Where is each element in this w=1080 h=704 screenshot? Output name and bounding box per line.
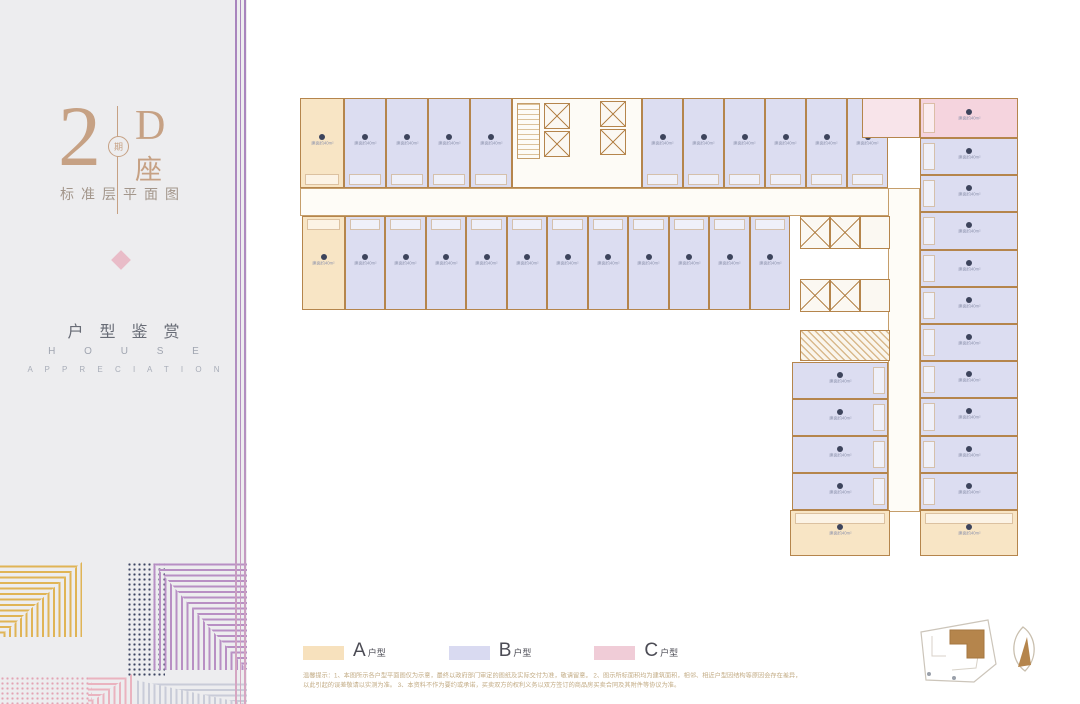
unit-type-B: 建面约40m² [792, 399, 888, 436]
compass-north-icon [1002, 622, 1044, 683]
elevator-icon [800, 216, 830, 249]
unit-type-B: 建面约40m² [507, 216, 547, 310]
unit-area-label: 建面约40m² [829, 416, 851, 421]
legend-letter-c: C [644, 641, 658, 660]
unit-icon [783, 134, 789, 140]
unit-area-label: 建面约40m² [692, 141, 714, 146]
unit-type-B: 建面约40m² [920, 398, 1018, 436]
unit-type-B: 建面约40m² [920, 324, 1018, 361]
unit-bathroom [688, 174, 719, 185]
legend-suffix-b: 户型 [513, 646, 531, 659]
unit-type-A: 建面约40m² [790, 510, 890, 556]
unit-icon [362, 134, 368, 140]
unit-type-B: 建面约40m² [920, 361, 1018, 398]
unit-bathroom [431, 219, 461, 230]
unit-icon [403, 254, 409, 260]
unit-area-label: 建面约40m² [311, 141, 333, 146]
unit-type-C [862, 98, 920, 138]
unit-bathroom [923, 255, 935, 282]
unit-bathroom [923, 143, 935, 170]
unit-icon [966, 297, 972, 303]
unit-type-B: 建面约40m² [642, 98, 683, 188]
unit-icon [966, 109, 972, 115]
unit-icon [966, 483, 972, 489]
unit-area-label: 建面约40m² [637, 261, 659, 266]
elevator-icon [544, 103, 570, 129]
unit-bathroom [349, 174, 381, 185]
elevator-icon [544, 131, 570, 157]
unit-area-label: 建面约40m² [815, 141, 837, 146]
unit-type-B: 建面约40m² [792, 436, 888, 473]
unit-area-label: 建面约40m² [759, 261, 781, 266]
unit-bathroom [923, 329, 935, 356]
unit-area-label: 建面约40m² [480, 141, 502, 146]
unit-bathroom [647, 174, 678, 185]
unit-type-A: 建面约40m² [920, 510, 1018, 556]
unit-bathroom [923, 366, 935, 393]
unit-type-B: 建面约40m² [426, 216, 466, 310]
unit-area-label: 建面约40m² [354, 141, 376, 146]
unit-icon [701, 134, 707, 140]
elevator-icon [830, 279, 860, 312]
unit-area-label: 建面约40m² [958, 229, 980, 234]
unit-area-label: 建面约40m² [774, 141, 796, 146]
unit-type-B: 建面约40m² [920, 212, 1018, 250]
unit-bathroom [350, 219, 380, 230]
unit-type-B: 建面约40m² [920, 473, 1018, 510]
legend-suffix-a: 户型 [368, 646, 386, 659]
unit-area-label: 建面约40m² [516, 261, 538, 266]
legend-letter-b: B [499, 641, 512, 660]
unit-type-B: 建面约40m² [588, 216, 628, 310]
unit-type-B: 建面约40m² [470, 98, 512, 188]
unit-icon [321, 254, 327, 260]
unit-type-B: 建面约40m² [344, 98, 386, 188]
unit-type-B: 建面约40m² [920, 436, 1018, 473]
unit-icon [966, 222, 972, 228]
unit-icon [605, 254, 611, 260]
unit-icon [742, 134, 748, 140]
unit-bathroom [925, 513, 1013, 524]
unit-type-B: 建面约40m² [920, 175, 1018, 212]
unit-bathroom [593, 219, 623, 230]
legend-item-a: A 户型 [303, 641, 386, 660]
unit-type-B: 建面约40m² [628, 216, 669, 310]
unit-area-label: 建面约40m² [958, 304, 980, 309]
unit-area-label: 建面约40m² [475, 261, 497, 266]
unit-type-B: 建面约40m² [428, 98, 470, 188]
unit-icon [443, 254, 449, 260]
unit-icon [966, 371, 972, 377]
unit-type-B: 建面约40m² [806, 98, 847, 188]
unit-bathroom [923, 478, 935, 505]
lobby-cell [860, 279, 890, 312]
unit-area-label: 建面约40m² [312, 261, 334, 266]
unit-bathroom [633, 219, 664, 230]
unit-bathroom [873, 478, 885, 505]
unit-icon [404, 134, 410, 140]
unit-icon [966, 446, 972, 452]
unit-icon [966, 148, 972, 154]
unit-type-B: 建面约40m² [792, 473, 888, 510]
unit-icon [646, 254, 652, 260]
unit-area-label: 建面约40m² [958, 490, 980, 495]
disclaimer-line-2: 以此引起的误差敬请以实测为准。 3、本资料不作为要约或承诺，买卖双方的权利义务以… [303, 681, 911, 690]
unit-icon [837, 372, 843, 378]
unit-area-label: 建面约40m² [718, 261, 740, 266]
unit-area-label: 建面约40m² [958, 415, 980, 420]
unit-area-label: 建面约40m² [829, 531, 851, 536]
unit-area-label: 建面约40m² [829, 490, 851, 495]
legend-swatch-a [303, 646, 344, 660]
unit-type-B: 建面约40m² [920, 138, 1018, 175]
unit-icon [837, 446, 843, 452]
unit-area-label: 建面约40m² [438, 141, 460, 146]
unit-icon [362, 254, 368, 260]
legend-swatch-c [594, 646, 635, 660]
unit-type-B: 建面约40m² [920, 287, 1018, 324]
unit-bathroom [923, 403, 935, 431]
corridor [888, 188, 920, 512]
unit-area-label: 建面约40m² [958, 378, 980, 383]
unit-type-B: 建面约40m² [792, 362, 888, 399]
unit-area-label: 建面约40m² [394, 261, 416, 266]
unit-area-label: 建面约40m² [958, 531, 980, 536]
unit-area-label: 建面约40m² [597, 261, 619, 266]
unit-area-label: 建面约40m² [733, 141, 755, 146]
unit-icon [966, 334, 972, 340]
legend-letter-a: A [353, 641, 366, 660]
unit-icon [488, 134, 494, 140]
unit-bathroom [471, 219, 502, 230]
unit-area-label: 建面约40m² [396, 141, 418, 146]
unit-bathroom [795, 513, 885, 524]
unit-icon [727, 254, 733, 260]
unit-bathroom [923, 180, 935, 207]
unit-bathroom [714, 219, 745, 230]
unit-bathroom [873, 441, 885, 468]
legend-item-c: C 户型 [594, 641, 678, 660]
unit-bathroom [674, 219, 704, 230]
disclaimer-line-1: 温馨提示：1、本图所示各户型平面图仅为示意，最终以政府部门审定的图纸及实际交付为… [303, 672, 911, 681]
unit-type-B: 建面约40m² [345, 216, 385, 310]
unit-type-B: 建面约40m² [386, 98, 428, 188]
unit-type-B: 建面约40m² [683, 98, 724, 188]
unit-icon [524, 254, 530, 260]
unit-area-label: 建面约40m² [829, 453, 851, 458]
unit-bathroom [923, 103, 935, 133]
unit-icon [966, 408, 972, 414]
unit-icon [837, 409, 843, 415]
unit-icon [446, 134, 452, 140]
machine-room [800, 330, 890, 361]
elevator-icon [830, 216, 860, 249]
unit-icon [966, 185, 972, 191]
lobby-cell [860, 216, 890, 249]
unit-bathroom [923, 292, 935, 319]
unit-bathroom [923, 441, 935, 468]
unit-type-B: 建面约40m² [765, 98, 806, 188]
stair-icon [517, 103, 540, 159]
unit-icon [824, 134, 830, 140]
unit-area-label: 建面约40m² [678, 261, 700, 266]
unit-area-label: 建面约40m² [354, 261, 376, 266]
floor-plan: 建面约40m²建面约40m²建面约40m²建面约40m²建面约40m²建面约40… [0, 0, 1080, 704]
unit-type-B: 建面约40m² [466, 216, 507, 310]
unit-bathroom [391, 174, 423, 185]
unit-bathroom [552, 219, 583, 230]
unit-bathroom [873, 367, 885, 394]
legend-swatch-b [449, 646, 490, 660]
unit-area-label: 建面约40m² [856, 141, 878, 146]
unit-bathroom [475, 174, 507, 185]
unit-type-B: 建面约40m² [750, 216, 790, 310]
unit-icon [837, 524, 843, 530]
unit-type-A: 建面约40m² [300, 98, 344, 188]
unit-bathroom [770, 174, 801, 185]
unit-bathroom [923, 217, 935, 245]
unit-bathroom [852, 174, 883, 185]
corridor [300, 188, 920, 216]
elevator-icon [600, 129, 626, 155]
unit-type-B: 建面约40m² [669, 216, 709, 310]
unit-area-label: 建面约40m² [556, 261, 578, 266]
unit-type-A: 建面约40m² [302, 216, 345, 310]
legend-suffix-c: 户型 [660, 646, 678, 659]
unit-area-label: 建面约40m² [958, 116, 980, 121]
legend-item-b: B 户型 [449, 641, 532, 660]
unit-icon [319, 134, 325, 140]
unit-bathroom [811, 174, 842, 185]
unit-bathroom [873, 404, 885, 431]
legend: A 户型 B 户型 C 户型 [303, 641, 741, 660]
unit-bathroom [729, 174, 760, 185]
elevator-icon [600, 101, 626, 127]
unit-type-B: 建面约40m² [920, 250, 1018, 287]
unit-type-B: 建面约40m² [724, 98, 765, 188]
unit-area-label: 建面约40m² [829, 379, 851, 384]
unit-icon [686, 254, 692, 260]
unit-bathroom [512, 219, 542, 230]
unit-type-B: 建面约40m² [385, 216, 426, 310]
unit-icon [767, 254, 773, 260]
unit-type-B: 建面约40m² [709, 216, 750, 310]
unit-area-label: 建面约40m² [435, 261, 457, 266]
unit-area-label: 建面约40m² [958, 155, 980, 160]
unit-icon [966, 524, 972, 530]
unit-area-label: 建面约40m² [958, 453, 980, 458]
unit-icon [484, 254, 490, 260]
unit-bathroom [307, 219, 340, 230]
unit-bathroom [755, 219, 785, 230]
unit-icon [660, 134, 666, 140]
unit-area-label: 建面约40m² [958, 267, 980, 272]
unit-icon [565, 254, 571, 260]
unit-bathroom [305, 174, 339, 185]
elevator-icon [800, 279, 830, 312]
unit-icon [837, 483, 843, 489]
unit-icon [966, 260, 972, 266]
unit-area-label: 建面约40m² [651, 141, 673, 146]
disclaimer-text: 温馨提示：1、本图所示各户型平面图仅为示意，最终以政府部门审定的图纸及实际交付为… [303, 672, 911, 690]
unit-bathroom [390, 219, 421, 230]
site-keyplan-icon [912, 612, 1002, 703]
unit-type-C: 建面约40m² [920, 98, 1018, 138]
unit-bathroom [433, 174, 465, 185]
unit-area-label: 建面约40m² [958, 192, 980, 197]
unit-area-label: 建面约40m² [958, 341, 980, 346]
unit-type-B: 建面约40m² [547, 216, 588, 310]
